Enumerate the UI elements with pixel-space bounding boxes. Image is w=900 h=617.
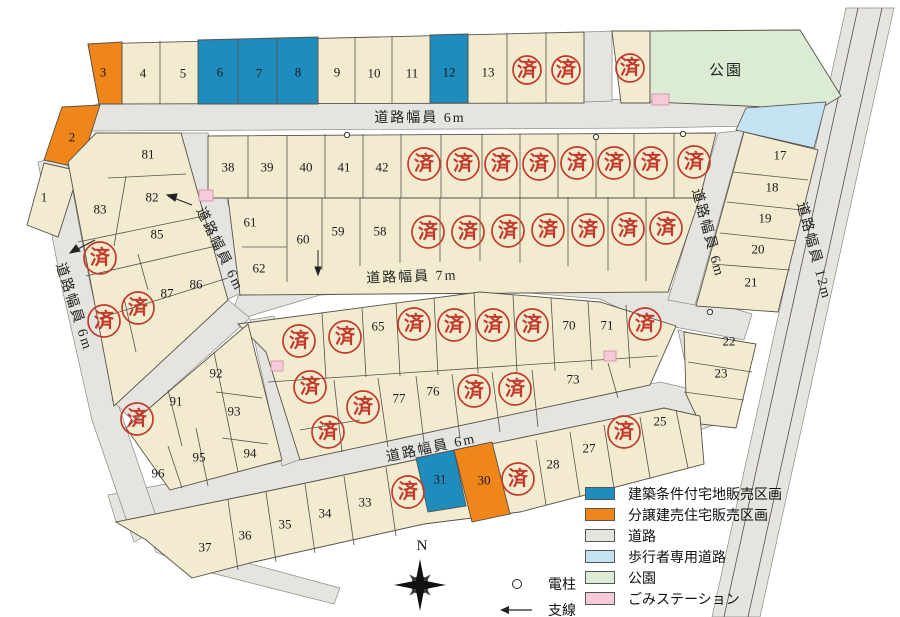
lot-13[interactable]: 13 [482,65,495,80]
lot-number-label: 82 [146,190,159,205]
utility-pole-icon [707,309,712,314]
gomi-station-icon [652,94,669,105]
utility-pole-icon [680,131,685,136]
lot-22[interactable]: 22 [723,334,736,349]
sold-stamp-text: 済 [453,151,474,175]
lot-1[interactable]: 1 [41,190,48,205]
lot-58[interactable]: 58 [374,224,387,239]
legend-swatch-ped [585,550,615,563]
lot-number-label: 65 [372,319,385,334]
legend-swatch-road [585,529,615,542]
lot-number-label: 11 [406,66,419,81]
lot-36[interactable]: 36 [239,528,253,543]
support-line-legend-icon [498,604,534,616]
lot-number-label: 93 [228,404,241,419]
sold-stamp-text: 済 [517,57,538,81]
lot-number-label: 59 [332,224,345,239]
lot-number-label: 60 [297,232,310,247]
legend-swatch-orange [585,508,615,521]
lot-number-label: 9 [334,65,341,80]
sold-stamp-text: 済 [353,394,374,418]
lot-2[interactable]: 2 [69,130,76,145]
legend-item: 道路 [585,529,782,542]
sold-stamp-text: 済 [128,295,149,319]
lot-19[interactable]: 19 [759,211,772,226]
lot-92[interactable]: 92 [210,366,223,381]
utility-pole-legend-icon [512,579,522,589]
lot-41[interactable]: 41 [338,160,351,175]
lot-number-label: 19 [759,211,772,226]
lot-8[interactable]: 8 [295,65,302,80]
lot-number-label: 73 [567,372,580,387]
lot-number-label: 34 [319,506,333,521]
sold-stamp-text: 済 [491,151,512,175]
legend: 建築条件付宅地販売区画 分譲建売住宅販売区画 道路 歩行者専用道路 公園 ごみス… [585,487,782,613]
sold-stamp-text: 済 [618,216,639,240]
lot-number-label: 21 [745,275,758,290]
legend-item: 分譲建売住宅販売区画 [585,508,782,521]
lot-number-label: 27 [583,441,597,456]
legend-symbol-denchu: 電柱 [512,574,576,594]
lot-number-label: 40 [300,160,313,175]
lot-number-label: 70 [563,318,576,333]
lot-31[interactable]: 31 [434,472,447,487]
sold-stamp-text: 済 [127,406,148,430]
sold-stamp-text: 済 [641,150,662,174]
legend-label: 歩行者専用道路 [628,547,726,567]
legend-label: ごみステーション [628,589,740,609]
lot-number-label: 61 [244,215,257,230]
lot-number-label: 22 [723,334,736,349]
lot-number-label: 20 [752,242,765,257]
lot-number-label: 36 [239,528,253,543]
sold-stamp[interactable]: 済 [552,56,580,84]
sold-stamp-text: 済 [604,150,625,174]
compass-north-label: N [417,538,428,554]
sold-stamp-text: 済 [458,219,479,243]
lot-38[interactable]: 38 [222,160,235,175]
lot-94[interactable]: 94 [244,446,258,461]
sold-stamp[interactable]: 済 [616,54,644,82]
sold-stamp-text: 済 [404,311,425,335]
lot-10[interactable]: 10 [368,66,381,81]
lot-number-label: 95 [193,450,206,465]
sold-stamp-text: 済 [464,378,485,402]
lot-86[interactable]: 86 [190,277,204,292]
lot-number-label: 62 [253,261,266,276]
lot-12[interactable]: 12 [443,65,456,80]
lot-40[interactable]: 40 [300,160,313,175]
legend-label: 建築条件付宅地販売区画 [628,484,782,504]
utility-pole-icon [593,134,598,139]
lot-3[interactable]: 3 [100,65,107,80]
lot-number-label: 71 [601,318,614,333]
lot-number-label: 33 [359,495,372,510]
lot-number-label: 30 [478,473,491,488]
lot-number-label: 13 [482,65,495,80]
park-area [650,30,841,110]
legend-label: 分譲建売住宅販売区画 [628,505,768,525]
lot-number-label: 3 [100,65,107,80]
sold-stamp-text: 済 [656,215,677,239]
lot-35[interactable]: 35 [279,517,292,532]
road-label-top-6m: 道路幅員 6m [374,110,465,126]
sold-stamp-text: 済 [335,324,356,348]
sold-stamp-text: 済 [414,151,435,175]
gomi-station-icon [199,190,213,201]
sold-stamp-text: 済 [567,150,588,174]
subdivision-map: N 道路幅員 6m道路幅員 7m道路幅員 6m道路幅員 6m道路幅員 6m道路幅… [0,0,900,617]
lot-11[interactable]: 11 [406,66,419,81]
road-gap-top [584,31,612,102]
lot-73[interactable]: 73 [567,372,580,387]
lot-number-label: 39 [261,160,274,175]
lot-96[interactable]: 96 [152,466,166,481]
lot-number-label: 5 [180,66,187,81]
legend-symbol-shisen: 支線 [498,600,576,617]
lot-number-label: 28 [547,457,560,472]
compass-rose: N [394,538,446,611]
legend-label: 電柱 [548,574,576,594]
lot-83[interactable]: 83 [94,202,107,217]
lot-27[interactable]: 27 [583,441,597,456]
lot-number-label: 96 [152,466,166,481]
legend-swatch-pink [585,592,615,605]
lot-number-label: 25 [654,414,667,429]
sold-stamp-text: 済 [300,374,321,398]
sold-stamp-text: 済 [684,149,705,173]
lot-42[interactable]: 42 [376,160,389,175]
lot-number-label: 85 [151,227,164,242]
sold-stamp-text: 済 [556,57,577,81]
lot-17[interactable]: 17 [774,148,788,163]
sold-stamp-text: 済 [289,328,310,352]
lot-18[interactable]: 18 [766,180,779,195]
sold-stamp-text: 済 [318,419,339,443]
lot-number-label: 86 [190,277,204,292]
lot-4[interactable]: 4 [140,66,147,81]
lot-59[interactable]: 59 [332,224,345,239]
sold-stamp-text: 済 [508,466,529,490]
sold-stamp-text: 済 [529,151,550,175]
lot-number-label: 23 [715,366,728,381]
lot-9[interactable]: 9 [334,65,341,80]
lot-33[interactable]: 33 [359,495,372,510]
lot-61[interactable]: 61 [244,215,257,230]
lot-number-label: 87 [161,286,175,301]
lot-number-label: 76 [427,384,441,399]
lot-23[interactable]: 23 [715,366,728,381]
lot-87[interactable]: 87 [161,286,175,301]
lot-21[interactable]: 21 [745,275,758,290]
lot-77[interactable]: 77 [393,391,407,406]
lot-number-label: 77 [393,391,407,406]
lot-number-label: 2 [69,130,76,145]
lot-number-label: 6 [217,65,224,80]
lot-number-label: 31 [434,472,447,487]
sold-stamp-text: 済 [578,217,599,241]
sold-stamp[interactable]: 済 [513,56,541,84]
lot-25[interactable]: 25 [654,414,667,429]
lot-20[interactable]: 20 [752,242,765,257]
lot-number-label: 1 [41,190,48,205]
sold-stamp-text: 済 [620,55,641,79]
lot-91[interactable]: 91 [170,394,183,409]
legend-label: 道路 [628,526,656,546]
road-label-mid-7m: 道路幅員 7m [366,267,458,286]
sold-stamp-text: 済 [498,218,519,242]
lot-number-label: 83 [94,202,107,217]
lot-93[interactable]: 93 [228,404,241,419]
sold-stamp-text: 済 [635,311,656,335]
lot-number-label: 18 [766,180,779,195]
legend-item: 歩行者専用道路 [585,550,782,563]
sold-stamp-text: 済 [614,419,635,443]
lot-81[interactable]: 81 [142,147,155,162]
lot-number-label: 91 [170,394,183,409]
lot-5[interactable]: 5 [180,66,187,81]
lot-85[interactable]: 85 [151,227,164,242]
lot-7[interactable]: 7 [256,66,263,81]
park-label: 公園 [709,62,743,79]
lot-number-label: 37 [199,540,213,555]
lot-60[interactable]: 60 [297,232,310,247]
lot-30[interactable]: 30 [478,473,491,488]
lot-number-label: 92 [210,366,223,381]
lot-number-label: 7 [256,66,263,81]
lot-number-label: 8 [295,65,302,80]
lot-28[interactable]: 28 [547,457,560,472]
sold-stamp-text: 済 [94,308,115,332]
gomi-station-icon [604,351,616,361]
lot-number-label: 41 [338,160,351,175]
lot-number-label: 12 [443,65,456,80]
lot-37[interactable]: 37 [199,540,213,555]
lot-number-label: 38 [222,160,235,175]
lot-6[interactable]: 6 [217,65,224,80]
lot-number-label: 58 [374,224,387,239]
lot-62[interactable]: 62 [253,261,266,276]
lot-34[interactable]: 34 [319,506,333,521]
sold-stamp-text: 済 [483,312,504,336]
lot-65[interactable]: 65 [372,319,385,334]
sold-stamp-text: 済 [398,479,419,503]
lot-number-label: 17 [774,148,788,163]
lot-39[interactable]: 39 [261,160,274,175]
sold-stamp-text: 済 [90,245,111,269]
lot-70[interactable]: 70 [563,318,576,333]
legend-swatch-park [585,571,615,584]
sold-stamp-text: 済 [505,376,526,400]
legend-item: 公園 [585,571,782,584]
lot-71[interactable]: 71 [601,318,614,333]
lot-95[interactable]: 95 [193,450,206,465]
lot-82[interactable]: 82 [146,190,159,205]
sold-stamp-text: 済 [522,312,543,336]
utility-pole-icon [344,132,349,137]
sold-stamp-text: 済 [418,219,439,243]
legend-item: 建築条件付宅地販売区画 [585,487,782,500]
lot-number-label: 94 [244,446,258,461]
lot-number-label: 4 [140,66,147,81]
gomi-station-icon [271,361,283,371]
legend-label: 公園 [628,568,656,588]
lot-76[interactable]: 76 [427,384,441,399]
legend-swatch-blue [585,487,615,500]
lot-number-label: 42 [376,160,389,175]
lot-number-label: 10 [368,66,381,81]
sold-stamp-text: 済 [538,217,559,241]
legend-label: 支線 [548,600,576,617]
lot-number-label: 35 [279,517,292,532]
legend-item: ごみステーション [585,592,782,605]
sold-stamp-text: 済 [444,312,465,336]
lot-number-label: 81 [142,147,155,162]
